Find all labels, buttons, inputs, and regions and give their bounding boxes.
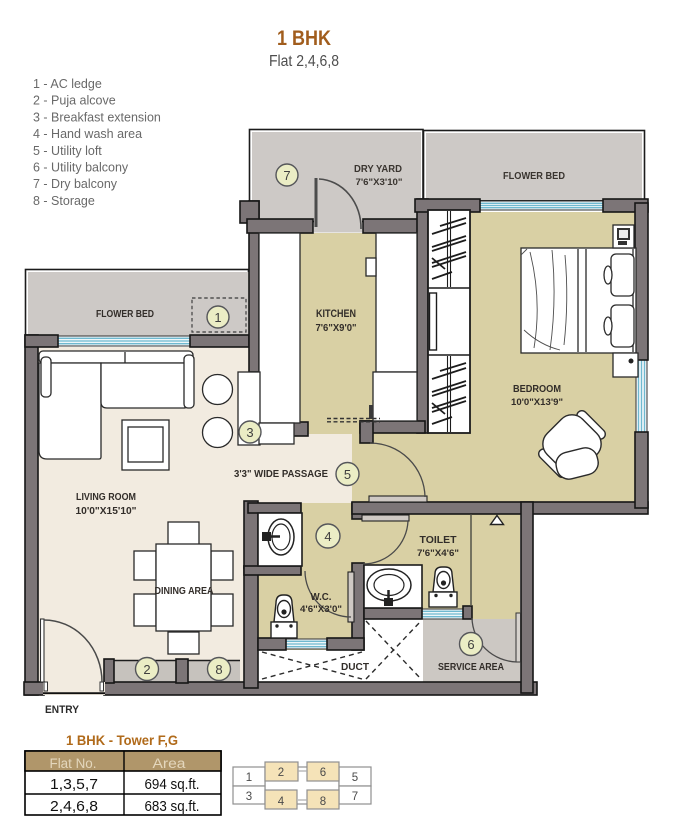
- svg-text:W.C.: W.C.: [311, 592, 332, 603]
- svg-text:10'0"X13'9": 10'0"X13'9": [511, 397, 563, 408]
- svg-text:7: 7: [283, 168, 290, 183]
- svg-text:7 - Dry balcony: 7 - Dry balcony: [33, 177, 118, 191]
- svg-text:7'6"X4'6": 7'6"X4'6": [417, 548, 459, 559]
- svg-text:Area: Area: [153, 756, 187, 771]
- svg-text:KITCHEN: KITCHEN: [316, 308, 356, 320]
- svg-text:2 - Puja alcove: 2 - Puja alcove: [33, 94, 116, 108]
- svg-text:4'6"X3'0": 4'6"X3'0": [300, 604, 342, 615]
- svg-text:5: 5: [352, 772, 358, 784]
- svg-text:1 BHK: 1 BHK: [277, 27, 331, 50]
- svg-text:FLOWER BED: FLOWER BED: [503, 170, 565, 182]
- svg-text:TOILET: TOILET: [420, 534, 458, 546]
- svg-text:5 - Utility loft: 5 - Utility loft: [33, 144, 102, 158]
- svg-text:4: 4: [278, 796, 285, 808]
- svg-text:8: 8: [215, 662, 222, 677]
- svg-text:2: 2: [143, 662, 150, 677]
- svg-text:694 sq.ft.: 694 sq.ft.: [145, 777, 200, 793]
- svg-text:1,3,5,7: 1,3,5,7: [50, 777, 98, 793]
- svg-text:Flat No.: Flat No.: [50, 756, 97, 771]
- svg-text:2,4,6,8: 2,4,6,8: [50, 799, 98, 815]
- svg-text:3: 3: [246, 425, 253, 440]
- svg-text:6 - Utility balcony: 6 - Utility balcony: [33, 161, 129, 175]
- svg-text:BEDROOM: BEDROOM: [513, 383, 561, 395]
- svg-text:4: 4: [324, 529, 331, 544]
- svg-text:SERVICE AREA: SERVICE AREA: [438, 662, 504, 673]
- svg-text:6: 6: [320, 767, 326, 779]
- svg-text:683 sq.ft.: 683 sq.ft.: [145, 799, 200, 815]
- svg-text:7'6"X3'10": 7'6"X3'10": [356, 177, 403, 188]
- svg-text:7'6"X9'0": 7'6"X9'0": [316, 323, 357, 334]
- svg-text:1: 1: [246, 772, 252, 784]
- svg-text:2: 2: [278, 767, 284, 779]
- svg-text:3: 3: [246, 791, 252, 803]
- svg-text:6: 6: [467, 637, 474, 652]
- svg-text:8: 8: [320, 796, 326, 808]
- svg-text:1 - AC ledge: 1 - AC ledge: [33, 77, 102, 91]
- svg-text:3 - Breakfast extension: 3 - Breakfast extension: [33, 110, 161, 124]
- svg-text:FLOWER BED: FLOWER BED: [96, 308, 154, 320]
- svg-text:10'0"X15'10": 10'0"X15'10": [76, 506, 137, 517]
- svg-text:3'3" WIDE PASSAGE: 3'3" WIDE PASSAGE: [234, 468, 328, 480]
- svg-text:ENTRY: ENTRY: [45, 704, 80, 716]
- svg-text:1: 1: [214, 310, 221, 325]
- svg-text:Flat 2,4,6,8: Flat 2,4,6,8: [269, 53, 339, 70]
- svg-text:4 - Hand wash area: 4 - Hand wash area: [33, 127, 142, 141]
- svg-text:8 - Storage: 8 - Storage: [33, 194, 95, 208]
- svg-text:1 BHK - Tower F,G: 1 BHK - Tower F,G: [66, 733, 178, 748]
- svg-text:LIVING ROOM: LIVING ROOM: [76, 491, 136, 503]
- svg-text:7: 7: [352, 791, 358, 803]
- svg-text:5: 5: [344, 467, 351, 482]
- svg-text:DRY YARD: DRY YARD: [354, 163, 402, 175]
- svg-text:DINING AREA: DINING AREA: [155, 585, 214, 597]
- svg-text:DUCT: DUCT: [341, 661, 370, 673]
